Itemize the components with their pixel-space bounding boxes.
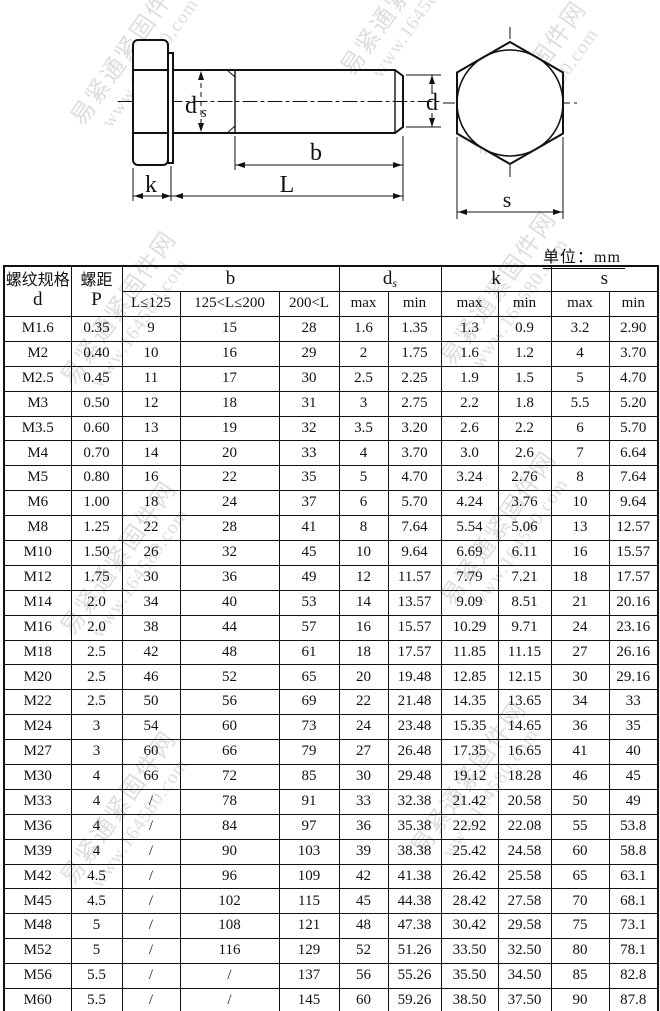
table-row: M364/84973635.3822.9222.085553.8	[4, 814, 658, 839]
cell-b_125_200: 102	[180, 889, 279, 914]
cell-b_gt200: 31	[279, 391, 339, 416]
cell-b_125_200: 96	[180, 864, 279, 889]
cell-b_gt200: 69	[279, 690, 339, 715]
cell-s_max: 6	[551, 416, 609, 441]
cell-d: M56	[4, 964, 71, 989]
cell-b_125_200: 18	[180, 391, 279, 416]
cell-s_min: 4.70	[609, 366, 658, 391]
cell-s_max: 5	[551, 366, 609, 391]
cell-k_min: 29.58	[498, 914, 551, 939]
cell-s_min: 78.1	[609, 939, 658, 964]
cell-k_min: 18.28	[498, 765, 551, 790]
cell-k_max: 6.69	[441, 541, 498, 566]
cell-k_min: 1.2	[498, 341, 551, 366]
cell-b_le125: /	[122, 939, 180, 964]
cell-ds_min: 9.64	[388, 541, 441, 566]
cell-k_max: 26.42	[441, 864, 498, 889]
cell-b_gt200: 28	[279, 317, 339, 342]
cell-s_max: 34	[551, 690, 609, 715]
cell-P: 5	[71, 939, 122, 964]
table-row: M222.55056692221.4814.3513.653433	[4, 690, 658, 715]
dimension-table: 螺纹规格 d 螺距 P b ds k s L≤125 125<L≤200 200…	[3, 265, 659, 1011]
cell-k_min: 2.6	[498, 441, 551, 466]
cell-P: 4	[71, 789, 122, 814]
cell-b_le125: 26	[122, 541, 180, 566]
cell-P: 2.0	[71, 615, 122, 640]
header-ds-min: min	[388, 292, 441, 317]
cell-k_max: 22.92	[441, 814, 498, 839]
cell-ds_min: 23.48	[388, 715, 441, 740]
cell-ds_max: 3	[339, 391, 388, 416]
cell-ds_max: 16	[339, 615, 388, 640]
cell-b_125_200: 48	[180, 640, 279, 665]
cell-b_le125: 9	[122, 317, 180, 342]
cell-s_max: 27	[551, 640, 609, 665]
cell-b_le125: 54	[122, 715, 180, 740]
cell-P: 1.75	[71, 565, 122, 590]
header-s-max: max	[551, 292, 609, 317]
cell-b_125_200: 28	[180, 516, 279, 541]
cell-d: M8	[4, 516, 71, 541]
table-row: M1.60.35915281.61.351.30.93.22.90	[4, 317, 658, 342]
cell-b_125_200: 32	[180, 541, 279, 566]
cell-ds_max: 52	[339, 939, 388, 964]
cell-b_le125: 13	[122, 416, 180, 441]
cell-ds_max: 14	[339, 590, 388, 615]
cell-ds_min: 32.38	[388, 789, 441, 814]
cell-s_max: 4	[551, 341, 609, 366]
cell-d: M3.5	[4, 416, 71, 441]
cell-k_min: 1.5	[498, 366, 551, 391]
cell-k_max: 1.6	[441, 341, 498, 366]
cell-b_gt200: 137	[279, 964, 339, 989]
cell-s_min: 63.1	[609, 864, 658, 889]
cell-s_min: 26.16	[609, 640, 658, 665]
cell-s_min: 5.20	[609, 391, 658, 416]
cell-ds_min: 15.57	[388, 615, 441, 640]
cell-ds_max: 45	[339, 889, 388, 914]
cell-ds_min: 21.48	[388, 690, 441, 715]
cell-k_min: 2.76	[498, 466, 551, 491]
unit-label: 单位：mm	[543, 243, 625, 269]
cell-ds_max: 4	[339, 441, 388, 466]
cell-b_gt200: 49	[279, 565, 339, 590]
cell-b_le125: 42	[122, 640, 180, 665]
table-row: M142.03440531413.579.098.512120.16	[4, 590, 658, 615]
header-b-le125: L≤125	[122, 292, 180, 317]
cell-ds_min: 47.38	[388, 914, 441, 939]
header-thread-spec-d: d	[5, 290, 71, 310]
cell-k_min: 11.15	[498, 640, 551, 665]
cell-s_min: 33	[609, 690, 658, 715]
cell-b_le125: /	[122, 789, 180, 814]
table-row: M565.5//1375655.2635.5034.508582.8	[4, 964, 658, 989]
label-ds: d	[185, 93, 197, 119]
cell-k_max: 14.35	[441, 690, 498, 715]
cell-b_le125: 38	[122, 615, 180, 640]
cell-s_min: 20.16	[609, 590, 658, 615]
dimension-table-body: M1.60.35915281.61.351.30.93.22.90M20.401…	[4, 317, 658, 1011]
label-ds-sub: s	[201, 105, 207, 121]
cell-P: 5.5	[71, 989, 122, 1011]
table-row: M182.54248611817.5711.8511.152726.16	[4, 640, 658, 665]
cell-P: 2.5	[71, 665, 122, 690]
cell-b_gt200: 37	[279, 491, 339, 516]
cell-d: M52	[4, 939, 71, 964]
cell-ds_min: 2.25	[388, 366, 441, 391]
cell-k_min: 3.76	[498, 491, 551, 516]
table-row: M424.5/961094241.3826.4225.586563.1	[4, 864, 658, 889]
cell-d: M6	[4, 491, 71, 516]
cell-s_max: 8	[551, 466, 609, 491]
cell-b_gt200: 35	[279, 466, 339, 491]
cell-s_min: 68.1	[609, 889, 658, 914]
cell-d: M1.6	[4, 317, 71, 342]
cell-d: M18	[4, 640, 71, 665]
table-row: M454.5/1021154544.3828.4227.587068.1	[4, 889, 658, 914]
cell-d: M16	[4, 615, 71, 640]
cell-ds_min: 7.64	[388, 516, 441, 541]
cell-ds_min: 1.35	[388, 317, 441, 342]
table-row: M121.753036491211.577.797.211817.57	[4, 565, 658, 590]
cell-k_max: 15.35	[441, 715, 498, 740]
cell-k_max: 38.50	[441, 989, 498, 1011]
cell-s_min: 15.57	[609, 541, 658, 566]
header-s-min: min	[609, 292, 658, 317]
header-pitch-cn: 螺距	[72, 273, 122, 290]
table-row: M605.5//1456059.2638.5037.509087.8	[4, 989, 658, 1011]
cell-ds_max: 30	[339, 765, 388, 790]
cell-P: 1.25	[71, 516, 122, 541]
cell-b_125_200: 16	[180, 341, 279, 366]
cell-b_le125: 50	[122, 690, 180, 715]
cell-b_125_200: 44	[180, 615, 279, 640]
cell-s_max: 50	[551, 789, 609, 814]
cell-b_le125: /	[122, 914, 180, 939]
cell-k_min: 12.15	[498, 665, 551, 690]
cell-s_max: 90	[551, 989, 609, 1011]
cell-ds_max: 3.5	[339, 416, 388, 441]
cell-d: M3	[4, 391, 71, 416]
table-row: M394/901033938.3825.4224.586058.8	[4, 839, 658, 864]
cell-s_min: 40	[609, 740, 658, 765]
cell-b_gt200: 109	[279, 864, 339, 889]
cell-ds_min: 19.48	[388, 665, 441, 690]
cell-k_max: 12.85	[441, 665, 498, 690]
cell-d: M4	[4, 441, 71, 466]
header-ds: ds	[339, 266, 441, 292]
cell-k_max: 17.35	[441, 740, 498, 765]
bolt-diagram: d s d b L k s	[0, 0, 660, 250]
cell-b_125_200: 108	[180, 914, 279, 939]
cell-k_min: 0.9	[498, 317, 551, 342]
cell-s_min: 87.8	[609, 989, 658, 1011]
cell-ds_max: 6	[339, 491, 388, 516]
cell-k_max: 7.79	[441, 565, 498, 590]
cell-b_gt200: 91	[279, 789, 339, 814]
cell-k_min: 13.65	[498, 690, 551, 715]
cell-P: 1.50	[71, 541, 122, 566]
table-row: M81.2522284187.645.545.061312.57	[4, 516, 658, 541]
cell-ds_max: 39	[339, 839, 388, 864]
cell-P: 0.60	[71, 416, 122, 441]
cell-d: M24	[4, 715, 71, 740]
cell-b_gt200: 85	[279, 765, 339, 790]
cell-k_min: 1.8	[498, 391, 551, 416]
table-row: M2435460732423.4815.3514.653635	[4, 715, 658, 740]
cell-b_le125: /	[122, 839, 180, 864]
cell-s_min: 53.8	[609, 814, 658, 839]
cell-ds_max: 60	[339, 989, 388, 1011]
cell-ds_min: 44.38	[388, 889, 441, 914]
cell-s_max: 30	[551, 665, 609, 690]
cell-k_min: 37.50	[498, 989, 551, 1011]
cell-b_le125: /	[122, 964, 180, 989]
cell-s_max: 3.2	[551, 317, 609, 342]
header-pitch: 螺距 P	[71, 266, 122, 317]
cell-b_125_200: 66	[180, 740, 279, 765]
table-row: M30.5012183132.752.21.85.55.20	[4, 391, 658, 416]
cell-s_min: 7.64	[609, 466, 658, 491]
cell-d: M2	[4, 341, 71, 366]
cell-b_le125: 11	[122, 366, 180, 391]
cell-k_min: 5.06	[498, 516, 551, 541]
cell-ds_max: 1.6	[339, 317, 388, 342]
cell-s_min: 82.8	[609, 964, 658, 989]
cell-b_125_200: 78	[180, 789, 279, 814]
cell-k_max: 21.42	[441, 789, 498, 814]
cell-k_min: 27.58	[498, 889, 551, 914]
cell-s_min: 23.16	[609, 615, 658, 640]
cell-k_min: 24.58	[498, 839, 551, 864]
cell-b_gt200: 53	[279, 590, 339, 615]
cell-ds_min: 29.48	[388, 765, 441, 790]
table-row: M2.50.451117302.52.251.91.554.70	[4, 366, 658, 391]
cell-k_max: 30.42	[441, 914, 498, 939]
cell-P: 2.0	[71, 590, 122, 615]
cell-P: 0.80	[71, 466, 122, 491]
cell-ds_min: 38.38	[388, 839, 441, 864]
table-row: M50.8016223554.703.242.7687.64	[4, 466, 658, 491]
cell-b_le125: 34	[122, 590, 180, 615]
cell-s_min: 5.70	[609, 416, 658, 441]
header-pitch-p: P	[72, 290, 122, 310]
cell-ds_min: 51.26	[388, 939, 441, 964]
header-s: s	[551, 266, 658, 292]
cell-d: M33	[4, 789, 71, 814]
cell-ds_min: 11.57	[388, 565, 441, 590]
cell-b_le125: /	[122, 989, 180, 1011]
cell-b_le125: /	[122, 814, 180, 839]
cell-k_max: 5.54	[441, 516, 498, 541]
cell-ds_min: 59.26	[388, 989, 441, 1011]
cell-k_max: 1.9	[441, 366, 498, 391]
header-b-125-200: 125<L≤200	[180, 292, 279, 317]
label-b: b	[310, 140, 322, 166]
cell-b_125_200: 17	[180, 366, 279, 391]
cell-ds_max: 24	[339, 715, 388, 740]
cell-k_min: 7.21	[498, 565, 551, 590]
cell-b_125_200: 24	[180, 491, 279, 516]
cell-s_min: 6.64	[609, 441, 658, 466]
cell-b_125_200: 72	[180, 765, 279, 790]
cell-ds_min: 5.70	[388, 491, 441, 516]
table-row: M40.7014203343.703.02.676.64	[4, 441, 658, 466]
cell-b_gt200: 79	[279, 740, 339, 765]
cell-b_le125: 66	[122, 765, 180, 790]
cell-P: 1.00	[71, 491, 122, 516]
cell-s_max: 65	[551, 864, 609, 889]
cell-b_125_200: 22	[180, 466, 279, 491]
cell-P: 0.50	[71, 391, 122, 416]
cell-d: M14	[4, 590, 71, 615]
cell-d: M20	[4, 665, 71, 690]
header-thread-spec: 螺纹规格 d	[4, 266, 71, 317]
cell-s_min: 58.8	[609, 839, 658, 864]
cell-k_max: 3.24	[441, 466, 498, 491]
table-row: M3.50.601319323.53.202.62.265.70	[4, 416, 658, 441]
bolt-side-view	[118, 40, 443, 165]
cell-k_min: 34.50	[498, 964, 551, 989]
cell-b_le125: /	[122, 889, 180, 914]
bolt-head	[133, 40, 168, 165]
cell-b_le125: 60	[122, 740, 180, 765]
cell-s_min: 73.1	[609, 914, 658, 939]
cell-s_max: 70	[551, 889, 609, 914]
header-k: k	[441, 266, 551, 292]
table-row: M2736066792726.4817.3516.654140	[4, 740, 658, 765]
cell-k_max: 35.50	[441, 964, 498, 989]
cell-ds_min: 1.75	[388, 341, 441, 366]
header-k-max: max	[441, 292, 498, 317]
cell-ds_max: 8	[339, 516, 388, 541]
cell-s_max: 24	[551, 615, 609, 640]
cell-P: 2.5	[71, 690, 122, 715]
cell-P: 4.5	[71, 889, 122, 914]
header-b: b	[122, 266, 339, 292]
cell-ds_min: 3.20	[388, 416, 441, 441]
cell-s_max: 75	[551, 914, 609, 939]
cell-b_le125: 16	[122, 466, 180, 491]
table-row: M3046672853029.4819.1218.284645	[4, 765, 658, 790]
cell-b_125_200: /	[180, 989, 279, 1011]
cell-s_max: 55	[551, 814, 609, 839]
cell-b_125_200: 36	[180, 565, 279, 590]
cell-k_min: 8.51	[498, 590, 551, 615]
cell-k_min: 20.58	[498, 789, 551, 814]
cell-k_max: 33.50	[441, 939, 498, 964]
cell-b_125_200: /	[180, 964, 279, 989]
cell-d: M5	[4, 466, 71, 491]
cell-d: M12	[4, 565, 71, 590]
label-s: s	[503, 187, 512, 212]
cell-b_le125: 14	[122, 441, 180, 466]
cell-P: 3	[71, 740, 122, 765]
cell-ds_min: 3.70	[388, 441, 441, 466]
cell-ds_max: 42	[339, 864, 388, 889]
cell-ds_max: 18	[339, 640, 388, 665]
cell-b_gt200: 61	[279, 640, 339, 665]
cell-b_125_200: 52	[180, 665, 279, 690]
cell-b_125_200: 90	[180, 839, 279, 864]
cell-s_max: 16	[551, 541, 609, 566]
cell-ds_max: 2	[339, 341, 388, 366]
cell-P: 5	[71, 914, 122, 939]
cell-d: M30	[4, 765, 71, 790]
cell-k_max: 2.2	[441, 391, 498, 416]
cell-s_min: 29.16	[609, 665, 658, 690]
cell-b_gt200: 45	[279, 541, 339, 566]
cell-k_min: 22.08	[498, 814, 551, 839]
cell-s_max: 10	[551, 491, 609, 516]
cell-P: 0.70	[71, 441, 122, 466]
table-row: M61.0018243765.704.243.76109.64	[4, 491, 658, 516]
cell-ds_max: 20	[339, 665, 388, 690]
cell-k_max: 25.42	[441, 839, 498, 864]
cell-ds_min: 4.70	[388, 466, 441, 491]
cell-P: 0.40	[71, 341, 122, 366]
cell-k_min: 32.50	[498, 939, 551, 964]
cell-s_min: 17.57	[609, 565, 658, 590]
label-k: k	[145, 172, 157, 198]
cell-ds_max: 10	[339, 541, 388, 566]
table-row: M485/1081214847.3830.4229.587573.1	[4, 914, 658, 939]
cell-b_125_200: 20	[180, 441, 279, 466]
cell-b_gt200: 115	[279, 889, 339, 914]
cell-k_max: 19.12	[441, 765, 498, 790]
cell-b_le125: 46	[122, 665, 180, 690]
cell-s_max: 21	[551, 590, 609, 615]
cell-ds_max: 48	[339, 914, 388, 939]
cell-d: M39	[4, 839, 71, 864]
cell-P: 0.35	[71, 317, 122, 342]
cell-k_max: 4.24	[441, 491, 498, 516]
cell-b_gt200: 65	[279, 665, 339, 690]
page: 易紧通紧固件网www.164580.com易紧通紧固件网www.164580.c…	[0, 0, 660, 1011]
header-b-gt200: 200<L	[279, 292, 339, 317]
cell-b_gt200: 30	[279, 366, 339, 391]
cell-d: M27	[4, 740, 71, 765]
cell-b_gt200: 129	[279, 939, 339, 964]
table-row: M334/78913332.3821.4220.585049	[4, 789, 658, 814]
cell-P: 2.5	[71, 640, 122, 665]
cell-s_min: 12.57	[609, 516, 658, 541]
table-row: M101.50263245109.646.696.111615.57	[4, 541, 658, 566]
cell-ds_max: 33	[339, 789, 388, 814]
cell-ds_max: 36	[339, 814, 388, 839]
cell-k_min: 9.71	[498, 615, 551, 640]
cell-s_max: 60	[551, 839, 609, 864]
cell-b_gt200: 57	[279, 615, 339, 640]
label-L: L	[280, 172, 295, 198]
cell-b_gt200: 73	[279, 715, 339, 740]
cell-s_max: 46	[551, 765, 609, 790]
cell-k_max: 3.0	[441, 441, 498, 466]
table-row: M525/1161295251.2633.5032.508078.1	[4, 939, 658, 964]
cell-b_gt200: 29	[279, 341, 339, 366]
cell-s_max: 7	[551, 441, 609, 466]
cell-b_le125: /	[122, 864, 180, 889]
cell-s_max: 80	[551, 939, 609, 964]
cell-s_min: 3.70	[609, 341, 658, 366]
cell-k_min: 2.2	[498, 416, 551, 441]
cell-P: 4	[71, 765, 122, 790]
cell-b_le125: 22	[122, 516, 180, 541]
cell-ds_max: 56	[339, 964, 388, 989]
cell-k_max: 9.09	[441, 590, 498, 615]
cell-ds_max: 2.5	[339, 366, 388, 391]
cell-b_gt200: 33	[279, 441, 339, 466]
